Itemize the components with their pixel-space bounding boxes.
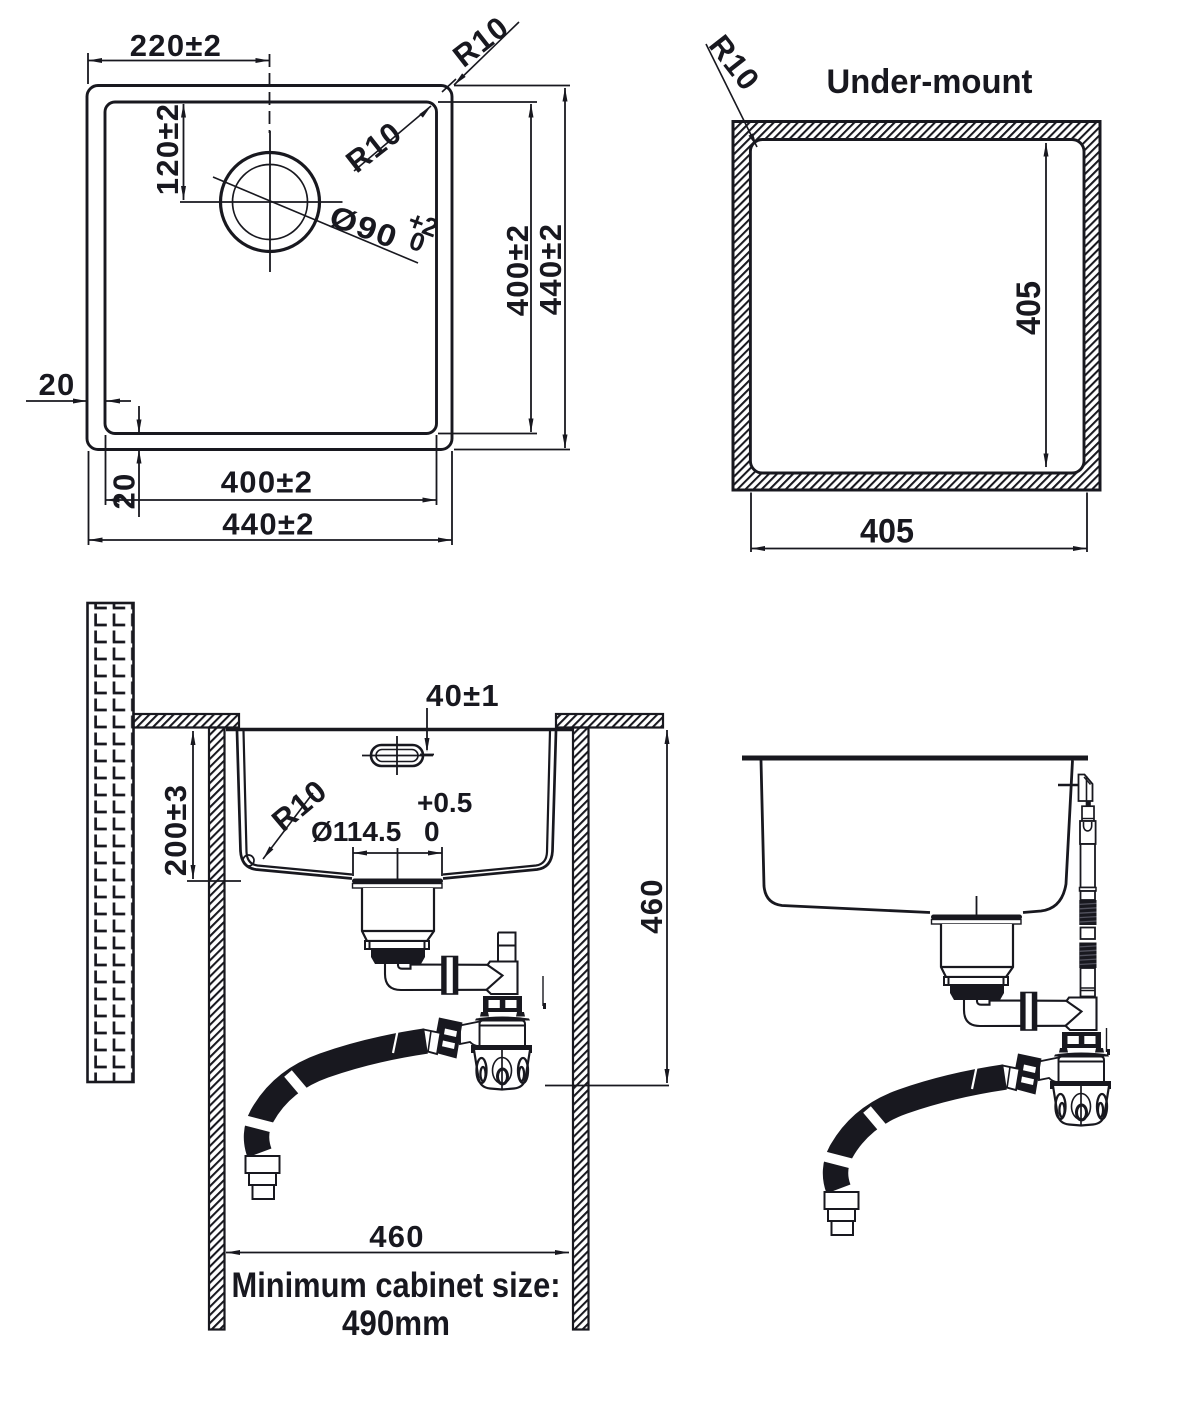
svg-text:40±1: 40±1 [426,678,500,713]
svg-text:20: 20 [38,367,75,402]
svg-text:440±2: 440±2 [222,507,314,542]
svg-text:Under-mount: Under-mount [827,63,1033,101]
svg-text:Minimum cabinet size:: Minimum cabinet size: [232,1266,561,1305]
svg-text:405: 405 [1010,281,1048,335]
svg-text:460: 460 [634,878,669,934]
svg-text:405: 405 [860,513,914,551]
svg-text:120±2: 120±2 [150,103,185,195]
svg-text:20: 20 [107,472,142,509]
svg-text:220±2: 220±2 [130,28,222,63]
svg-text:+0.5: +0.5 [417,787,472,818]
svg-text:440±2: 440±2 [533,223,568,315]
svg-text:400±2: 400±2 [221,465,313,500]
svg-text:Ø114.5: Ø114.5 [311,816,401,847]
svg-text:460: 460 [369,1219,425,1254]
svg-text:0: 0 [424,816,440,847]
svg-text:490mm: 490mm [342,1304,450,1343]
svg-text:400±2: 400±2 [500,224,535,316]
svg-text:200±3: 200±3 [158,784,193,876]
